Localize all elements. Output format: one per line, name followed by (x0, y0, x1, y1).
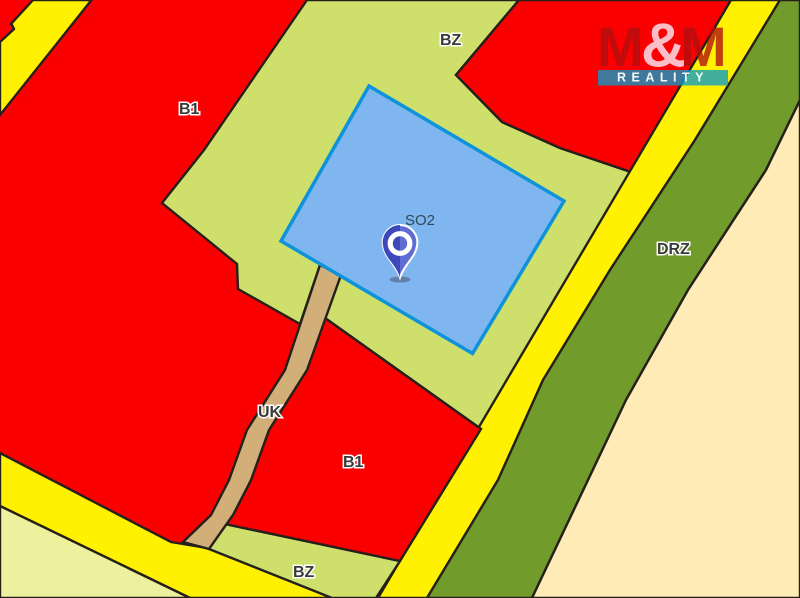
svg-text:DRZ: DRZ (657, 241, 690, 258)
svg-text:&: & (641, 12, 686, 81)
svg-text:UK: UK (258, 404, 282, 421)
svg-text:B1: B1 (179, 101, 200, 118)
svg-text:SO2: SO2 (405, 212, 435, 229)
svg-text:BZ: BZ (293, 564, 315, 581)
svg-text:M: M (597, 15, 644, 78)
svg-text:M: M (680, 15, 727, 78)
svg-text:B1: B1 (343, 454, 364, 471)
svg-text:BZ: BZ (440, 32, 462, 49)
